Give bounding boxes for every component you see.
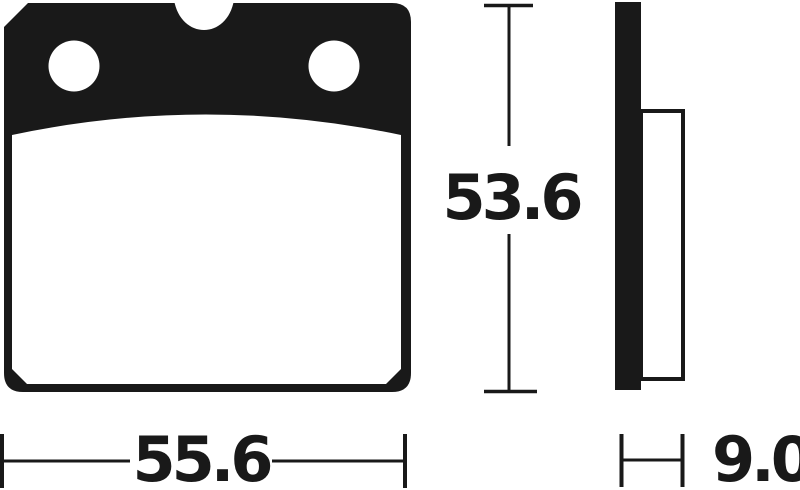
side-view bbox=[615, 2, 683, 390]
friction-material bbox=[12, 115, 401, 385]
dimension-thickness-label: 9.0 bbox=[712, 423, 800, 490]
dimension-width-label: 55.6 bbox=[133, 423, 271, 490]
dimension-height: 53.6 bbox=[443, 6, 581, 392]
friction-material-profile bbox=[641, 111, 683, 379]
front-view bbox=[4, 0, 411, 392]
dimension-width: 55.6 bbox=[1, 423, 405, 490]
mounting-hole-left bbox=[49, 41, 100, 92]
mounting-hole-right bbox=[309, 41, 360, 92]
dimension-height-label: 53.6 bbox=[443, 161, 581, 234]
dimension-thickness: 9.0 bbox=[621, 423, 800, 490]
backing-plate-edge bbox=[615, 2, 641, 390]
technical-drawing-canvas: 55.6 53.6 9.0 bbox=[0, 0, 800, 490]
brake-pad-diagram: 55.6 53.6 9.0 bbox=[0, 0, 800, 490]
